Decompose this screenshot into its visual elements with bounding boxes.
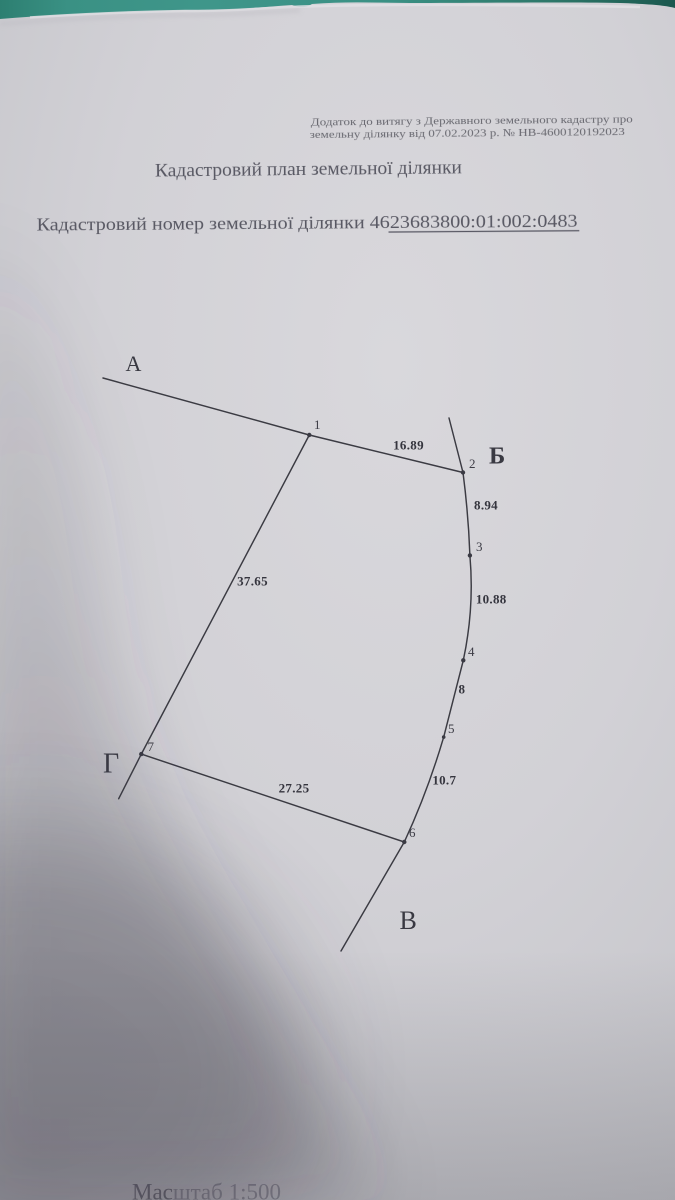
svg-text:8.94: 8.94 <box>474 498 498 513</box>
svg-text:2: 2 <box>469 456 476 471</box>
svg-text:Б: Б <box>489 443 505 470</box>
svg-text:В: В <box>400 906 417 935</box>
svg-text:5: 5 <box>448 721 455 736</box>
svg-text:1: 1 <box>314 417 321 432</box>
svg-text:7: 7 <box>148 739 155 754</box>
svg-text:16.89: 16.89 <box>393 438 424 453</box>
svg-text:4: 4 <box>468 644 475 659</box>
svg-text:6: 6 <box>409 825 416 840</box>
svg-text:8: 8 <box>458 682 465 697</box>
svg-text:27.25: 27.25 <box>279 781 310 796</box>
svg-text:10.88: 10.88 <box>476 592 507 607</box>
svg-text:А: А <box>126 351 142 376</box>
svg-text:10.7: 10.7 <box>432 773 456 788</box>
svg-text:3: 3 <box>476 539 483 554</box>
svg-text:Кадастровий план земельної діл: Кадастровий план земельної ділянки <box>155 158 462 181</box>
svg-text:37.65: 37.65 <box>237 574 268 589</box>
